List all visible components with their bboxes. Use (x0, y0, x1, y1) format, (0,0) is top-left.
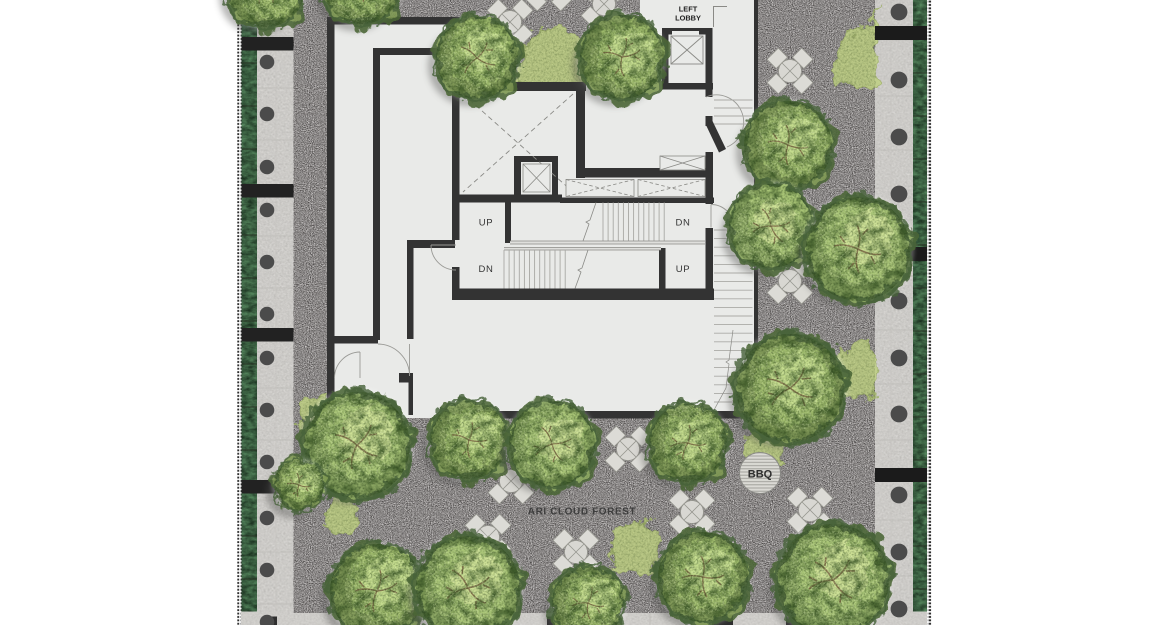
svg-text:DN: DN (676, 218, 691, 229)
svg-text:ARI CLOUD FOREST: ARI CLOUD FOREST (528, 507, 637, 518)
svg-text:LOBBY: LOBBY (675, 14, 701, 23)
svg-text:LEFT: LEFT (679, 5, 698, 14)
svg-text:DN: DN (479, 264, 494, 275)
svg-text:UP: UP (479, 218, 493, 229)
svg-text:BBQ: BBQ (748, 469, 773, 481)
svg-text:UP: UP (676, 264, 690, 275)
